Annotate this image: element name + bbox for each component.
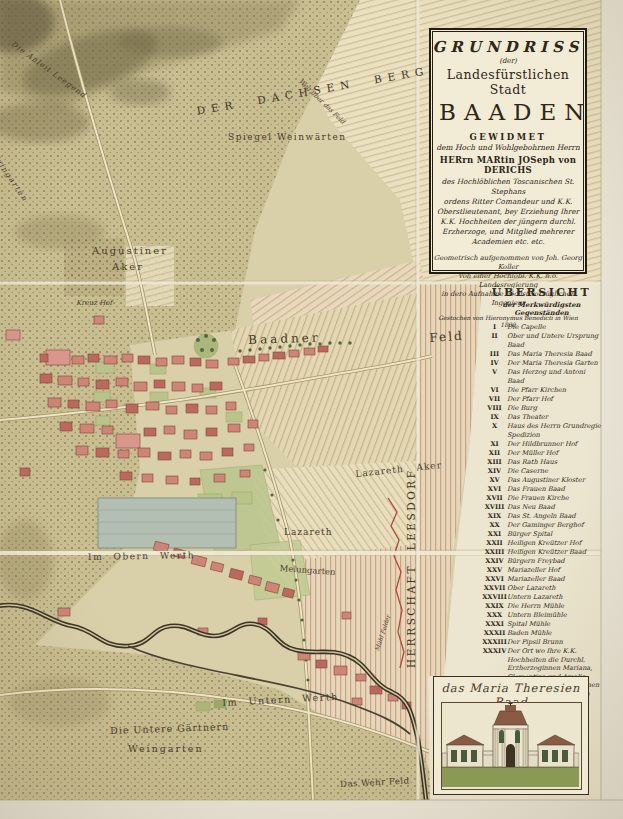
legend-entry: VIDie Pfarr Kirchen (482, 386, 601, 395)
title-der: (der) (431, 57, 585, 65)
legend-entry: XXIXDie Herrn Mühle (482, 602, 601, 611)
legend-entry-numeral: XII (482, 449, 507, 458)
legend-entry: XXIBürger Spital (482, 530, 601, 539)
legend-entry-numeral: XIII (482, 458, 507, 467)
legend-entry: XXXISpital Mühle (482, 620, 601, 629)
dedication-to: dem Hoch und Wohlgebohrnen Herrn (431, 143, 585, 152)
legend-entry: XXVIMariazeller Baad (482, 575, 601, 584)
legend-entry-label: Die Herrn Mühle (507, 602, 564, 611)
legend-entry: XXXIIIDer Pipsil Brunn (482, 638, 601, 647)
legend-entry: XXDer Gaminger Berghof (482, 521, 601, 530)
vignette-panel: das Maria Theresien Baad (433, 676, 589, 795)
legend-entry-numeral: XXVII (482, 584, 507, 593)
title-city: BAADEN (439, 99, 585, 125)
legend-entry-numeral: XXXI (482, 620, 507, 629)
legend-entry-label: Die Capelle (507, 323, 546, 332)
legend-entry: XXVMariazeller Hof (482, 566, 601, 575)
legend-entry-numeral: I (482, 323, 507, 332)
legend-entry: XVIDas Frauen Baad (482, 485, 601, 494)
legend-entry-numeral: XVIII (482, 503, 507, 512)
vignette-frame (441, 702, 582, 790)
dedication-line: des Hochlöblichen Toscanischen St. Steph… (431, 177, 585, 197)
legend-title: ÜBERSICHT (482, 286, 601, 299)
legend-entry-numeral: XXVIII (482, 593, 507, 602)
legend-entry: VIIDer Pfarr Hof (482, 395, 601, 404)
legend-entry-label: Ober Lazareth (507, 584, 555, 593)
legend-entry-numeral: XIX (482, 512, 507, 521)
legend-entry: XIIIDas Rath Haus (482, 458, 601, 467)
dedication-name: HERrn MARtin JOSeph von DERICHS (431, 155, 585, 175)
legend-entry-label: Das Augustiner Kloster (507, 476, 585, 485)
map-scan: Die Anleit Leegend Weingarten DER DACHSE… (0, 0, 623, 819)
legend-entry-numeral: XI (482, 440, 507, 449)
legend-entry-label: Die Burg (507, 404, 537, 413)
legend-entry-numeral: IX (482, 413, 507, 422)
legend-entry: XIIDer Müller Hof (482, 449, 601, 458)
legend-entry-label: Das Maria Theresia Baad (507, 350, 592, 359)
label-feld: Feld (429, 330, 464, 344)
legend-entry: XIDer Hildbrunner Hof (482, 440, 601, 449)
dedication-text: des Hochlöblichen Toscanischen St. Steph… (431, 177, 585, 247)
label-kreuz-hof: Kreuz Hof (76, 300, 112, 307)
label-herrschaft-leesdorf: HERRSCHAFT LEESDORF (406, 469, 417, 668)
legend-entry-numeral: XX (482, 521, 507, 530)
title-subtitle: Landesfürstlichen Stadt (431, 67, 585, 97)
legend-entry-label: Untern Bleimühle (507, 611, 567, 620)
legend-entry-label: Der Gaminger Berghof (507, 521, 583, 530)
label-augustiner-aker: Aker (112, 262, 144, 272)
legend-entry: XXIVBürgern Freybad (482, 557, 601, 566)
legend-entry-label: Untern Lazareth (507, 593, 563, 602)
legend-entry-label: Ober und Untere Ursprung Baad (507, 332, 601, 350)
legend-entry-label: Heiligen Kreützer Baad (507, 548, 586, 557)
legend-entry-label: Der Pipsil Brunn (507, 638, 563, 647)
label-baadner: Baadner (248, 331, 321, 346)
dedication-line: Academien etc. etc. (431, 237, 585, 247)
legend-entry-numeral: XXXIII (482, 638, 507, 647)
legend-entry-numeral: XXIII (482, 548, 507, 557)
legend-entry-numeral: X (482, 422, 507, 440)
legend-entry: XXVIIIUntern Lazareth (482, 593, 601, 602)
dedication-line: K.K. Hochheiten der jüngern durchl. (431, 217, 585, 227)
legend-entry: VDas Herzog und Antoni Baad (482, 368, 601, 386)
legend-entry: XVIIIDas Neu Baad (482, 503, 601, 512)
legend-entry-numeral: III (482, 350, 507, 359)
legend-entry-label: Der Maria Theresia Garten (507, 359, 598, 368)
legend-entry-label: Bürgern Freybad (507, 557, 565, 566)
label-augustiner: Augustiner (92, 246, 168, 256)
surveyor-line: Geometrisch aufgenommen von Joh. Georg K… (431, 254, 585, 272)
legend-entry: XXXUntern Bleimühle (482, 611, 601, 620)
legend-entry-numeral: VIII (482, 404, 507, 413)
legend-entry-label: Das St. Angeln Baad (507, 512, 576, 521)
legend-entry-numeral: XXX (482, 611, 507, 620)
legend-entry-label: Haus des Herrn Grundregie Spedizion (507, 422, 601, 440)
legend-entry-label: Die Caserne (507, 467, 548, 476)
legend-entry-numeral: XIV (482, 467, 507, 476)
legend-entry-label: Der Müller Hof (507, 449, 558, 458)
legend-entry-label: Heiligen Kreützer Hof (507, 539, 581, 548)
legend-entry-numeral: XV (482, 476, 507, 485)
legend-entry: IVDer Maria Theresia Garten (482, 359, 601, 368)
legend-entry-label: Baden Mühle (507, 629, 552, 638)
title-cartouche: GRUNDRISS (der) Landesfürstlichen Stadt … (429, 28, 587, 274)
legend-entry-numeral: IV (482, 359, 507, 368)
label-lazareth: Lazareth (284, 528, 333, 537)
dedication-header: GEWIDMET (431, 132, 585, 142)
legend-entry-label: Das Theater (507, 413, 548, 422)
legend-entry: XVIIDie Frauen Kirche (482, 494, 601, 503)
map-title: GRUNDRISS (431, 38, 585, 56)
legend-entry: XXIIHeiligen Kreützer Hof (482, 539, 601, 548)
legend-entries: IDie CapelleIIOber und Untere Ursprung B… (482, 323, 601, 707)
legend-entry: XHaus des Herrn Grundregie Spedizion (482, 422, 601, 440)
legend-entry: XVDas Augustiner Kloster (482, 476, 601, 485)
legend-entry: IXDas Theater (482, 413, 601, 422)
legend-entry-numeral: XXIX (482, 602, 507, 611)
legend-entry: XXIIIHeiligen Kreützer Baad (482, 548, 601, 557)
dedication-line: ordens Ritter Comandeur und K.K. (431, 197, 585, 207)
legend-entry: XXVIIOber Lazareth (482, 584, 601, 593)
legend-entry: IIIDas Maria Theresia Baad (482, 350, 601, 359)
legend-entry-numeral: VII (482, 395, 507, 404)
label-obern-werth: Im Obern Werth (88, 551, 195, 562)
legend-entry-numeral: XVI (482, 485, 507, 494)
legend-entry-label: Bürger Spital (507, 530, 552, 539)
legend-entry-numeral: XXVI (482, 575, 507, 584)
legend-entry-label: Der Hildbrunner Hof (507, 440, 577, 449)
dedication-line: Oberstlieutenant, bey Erziehung Ihrer (431, 207, 585, 217)
legend-entry-numeral: XXXII (482, 629, 507, 638)
label-spiegel-weingaerten: Spiegel Weinwärten (228, 133, 347, 142)
legend-panel: ÜBERSICHT der Merkwürdigsten Gegenstände… (482, 286, 601, 707)
legend-entry-numeral: V (482, 368, 507, 386)
legend-entry-label: Der Pfarr Hof (507, 395, 553, 404)
bathhouse-illustration (442, 703, 579, 787)
legend-entry-numeral: XXIV (482, 557, 507, 566)
legend-entry-numeral: II (482, 332, 507, 350)
legend-entry-label: Mariazeller Hof (507, 566, 560, 575)
legend-entry: XIXDas St. Angeln Baad (482, 512, 601, 521)
legend-entry-label: Das Frauen Baad (507, 485, 565, 494)
legend-entry-label: Die Frauen Kirche (507, 494, 569, 503)
legend-entry-numeral: XXV (482, 566, 507, 575)
legend-entry-label: Das Rath Haus (507, 458, 557, 467)
legend-entry-numeral: XXI (482, 530, 507, 539)
legend-subtitle: der Merkwürdigsten Gegenständen (482, 301, 601, 317)
legend-entry-label: Mariazeller Baad (507, 575, 565, 584)
label-untere-gaertnern-weingarten: Weingarten (128, 744, 204, 754)
legend-entry: XIVDie Caserne (482, 467, 601, 476)
legend-entry-numeral: VI (482, 386, 507, 395)
legend-entry-label: Das Herzog und Antoni Baad (507, 368, 601, 386)
legend-entry: VIIIDie Burg (482, 404, 601, 413)
legend-entry: IIOber und Untere Ursprung Baad (482, 332, 601, 350)
legend-entry: IDie Capelle (482, 323, 601, 332)
legend-entry-numeral: XXII (482, 539, 507, 548)
legend-entry-label: Die Pfarr Kirchen (507, 386, 566, 395)
legend-entry-label: Das Neu Baad (507, 503, 555, 512)
legend-entry: XXXIIBaden Mühle (482, 629, 601, 638)
legend-entry-numeral: XVII (482, 494, 507, 503)
dedication-line: Erzherzoge, und Mitglied mehrerer (431, 227, 585, 237)
legend-entry-label: Spital Mühle (507, 620, 550, 629)
